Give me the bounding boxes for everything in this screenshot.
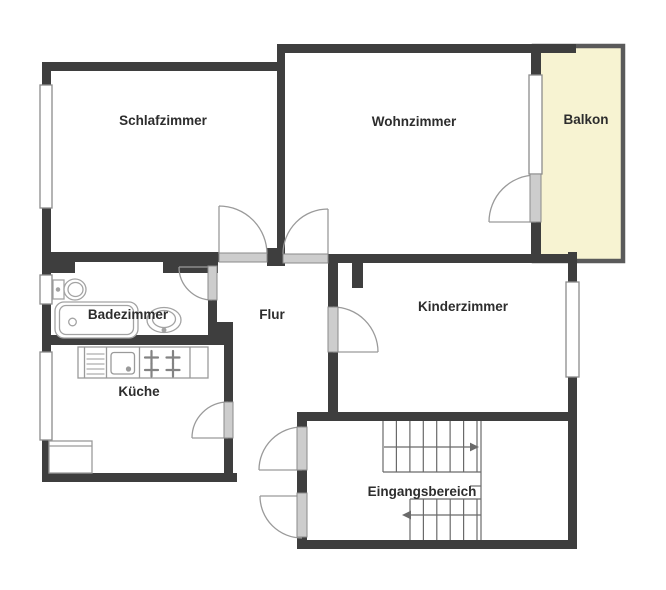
room-label-balkon: Balkon <box>563 112 608 127</box>
kitchen-counter <box>78 347 208 378</box>
washbasin-tap-dot <box>162 328 166 332</box>
room-label-wohnzimmer: Wohnzimmer <box>372 114 457 129</box>
door-arc-schlafzimmer <box>219 206 267 254</box>
wall-eingang-left-b <box>297 470 307 494</box>
window-badezimmer <box>40 275 52 304</box>
kitchen-sink <box>111 353 135 375</box>
wall-right-a <box>568 252 577 282</box>
wall-kinder-corner-stub <box>352 263 363 288</box>
wall-left-a <box>42 62 51 85</box>
room-label-kinderzimmer: Kinderzimmer <box>418 299 509 314</box>
room-label-eingangsbereich: Eingangsbereich <box>368 484 477 499</box>
window-wohnzimmer-balkon <box>529 75 542 174</box>
door-leaf-wohnzimmer <box>283 254 328 263</box>
wall-left-c <box>42 262 51 275</box>
door-leaf-eingang-lower <box>297 493 307 537</box>
room-label-kueche: Küche <box>118 384 160 399</box>
wall-eingang-top <box>297 412 576 421</box>
toilet <box>53 279 86 300</box>
wall-left-b <box>42 208 51 253</box>
toilet-flush-dot <box>56 288 59 291</box>
door-leaf-kueche <box>224 402 233 438</box>
wall-kueche-right-upper <box>224 335 233 402</box>
wall-schlafzimmer-bottom <box>42 252 219 262</box>
wall-kinder-left-bottom <box>328 352 338 421</box>
window-schlafzimmer <box>40 85 52 208</box>
room-label-flur: Flur <box>259 307 285 322</box>
door-arc-balkon <box>489 175 536 222</box>
window-kueche <box>40 352 52 440</box>
door-arc-kueche <box>192 402 228 438</box>
door-leaves <box>208 174 541 537</box>
wall-wohnzimmer-bottom <box>328 254 576 263</box>
door-leaf-badezimmer <box>208 266 217 300</box>
stairs-arrow-right-icon <box>470 443 479 452</box>
wall-eingang-bottom <box>297 540 576 549</box>
door-arc-eingang-lower <box>260 496 302 538</box>
wall-divider-schlaf-wohn <box>277 44 285 254</box>
window-kinderzimmer <box>566 282 579 377</box>
wall-balkon-top-stub <box>531 44 541 75</box>
refrigerator <box>49 441 92 473</box>
room-label-badezimmer: Badezimmer <box>88 307 169 322</box>
wall-flur-top-stub <box>267 248 285 266</box>
wall-corner-fill <box>208 322 233 335</box>
door-leaf-eingang-upper <box>297 427 307 470</box>
kitchen-sink-drain <box>127 367 131 371</box>
floor-plan-canvas: Schlafzimmer Wohnzimmer Balkon Badezimme… <box>0 0 666 590</box>
toilet-bowl-inner <box>68 283 83 297</box>
wall-eingang-left-a <box>297 421 307 427</box>
stair-arrowheads <box>402 443 479 520</box>
bathtub-drain <box>69 318 77 326</box>
stairs-arrow-left-icon <box>402 511 411 520</box>
wall-kueche-bottom <box>42 473 237 482</box>
balcony-floor <box>534 46 623 261</box>
wall-kueche-right-lower <box>224 438 233 473</box>
door-arc-wohnzimmer <box>283 209 328 254</box>
staircase <box>383 421 481 540</box>
wall-kinder-left-top <box>328 254 338 307</box>
wall-schlafzimmer-top <box>42 62 285 71</box>
door-leaf-schlafzimmer <box>219 253 267 262</box>
kitchen-fixtures <box>49 347 208 473</box>
door-arc-kinderzimmer <box>333 307 378 352</box>
stairs-lower-flight <box>410 499 481 540</box>
room-label-schlafzimmer: Schlafzimmer <box>119 113 208 128</box>
balcony-area <box>534 46 623 261</box>
door-leaf-balkon <box>530 174 541 222</box>
door-arc-eingang-upper <box>259 427 302 470</box>
floor-plan-drawing: Schlafzimmer Wohnzimmer Balkon Badezimme… <box>0 0 666 590</box>
wall-balkon-bottom-stub <box>531 222 541 254</box>
door-leaf-kinderzimmer <box>328 307 338 352</box>
kitchen-sink-basin <box>111 353 135 375</box>
wall-right-b <box>568 377 577 549</box>
